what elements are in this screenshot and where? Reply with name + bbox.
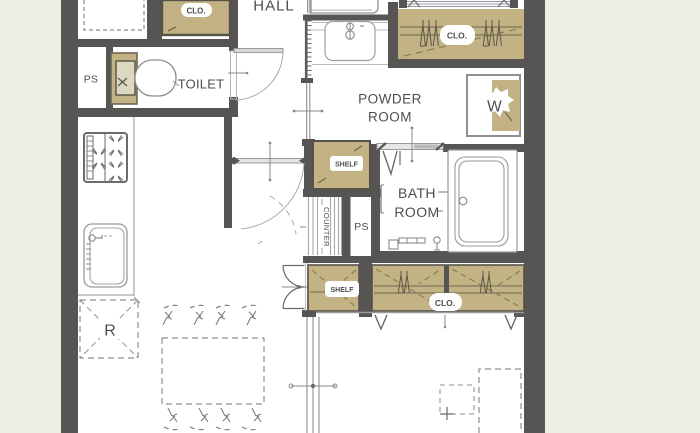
svg-text:ROOM: ROOM (368, 110, 412, 125)
svg-text:CLO.: CLO. (186, 7, 205, 16)
svg-text:SHELF: SHELF (331, 287, 355, 294)
svg-text:BATH: BATH (398, 185, 436, 201)
svg-text:PS: PS (84, 74, 99, 86)
svg-text:HALL: HALL (253, 0, 295, 15)
svg-text:W: W (487, 99, 502, 116)
svg-text:PS: PS (354, 221, 369, 233)
svg-text:R: R (104, 323, 116, 340)
svg-text:TOILET: TOILET (178, 77, 224, 92)
svg-text:CLO.: CLO. (435, 298, 455, 308)
svg-text:ROOM: ROOM (394, 204, 439, 220)
svg-text:SHELF: SHELF (335, 162, 359, 169)
svg-text:POWDER: POWDER (358, 92, 422, 107)
svg-text:CLO.: CLO. (447, 31, 467, 41)
svg-text:COUNTER: COUNTER (322, 207, 331, 247)
